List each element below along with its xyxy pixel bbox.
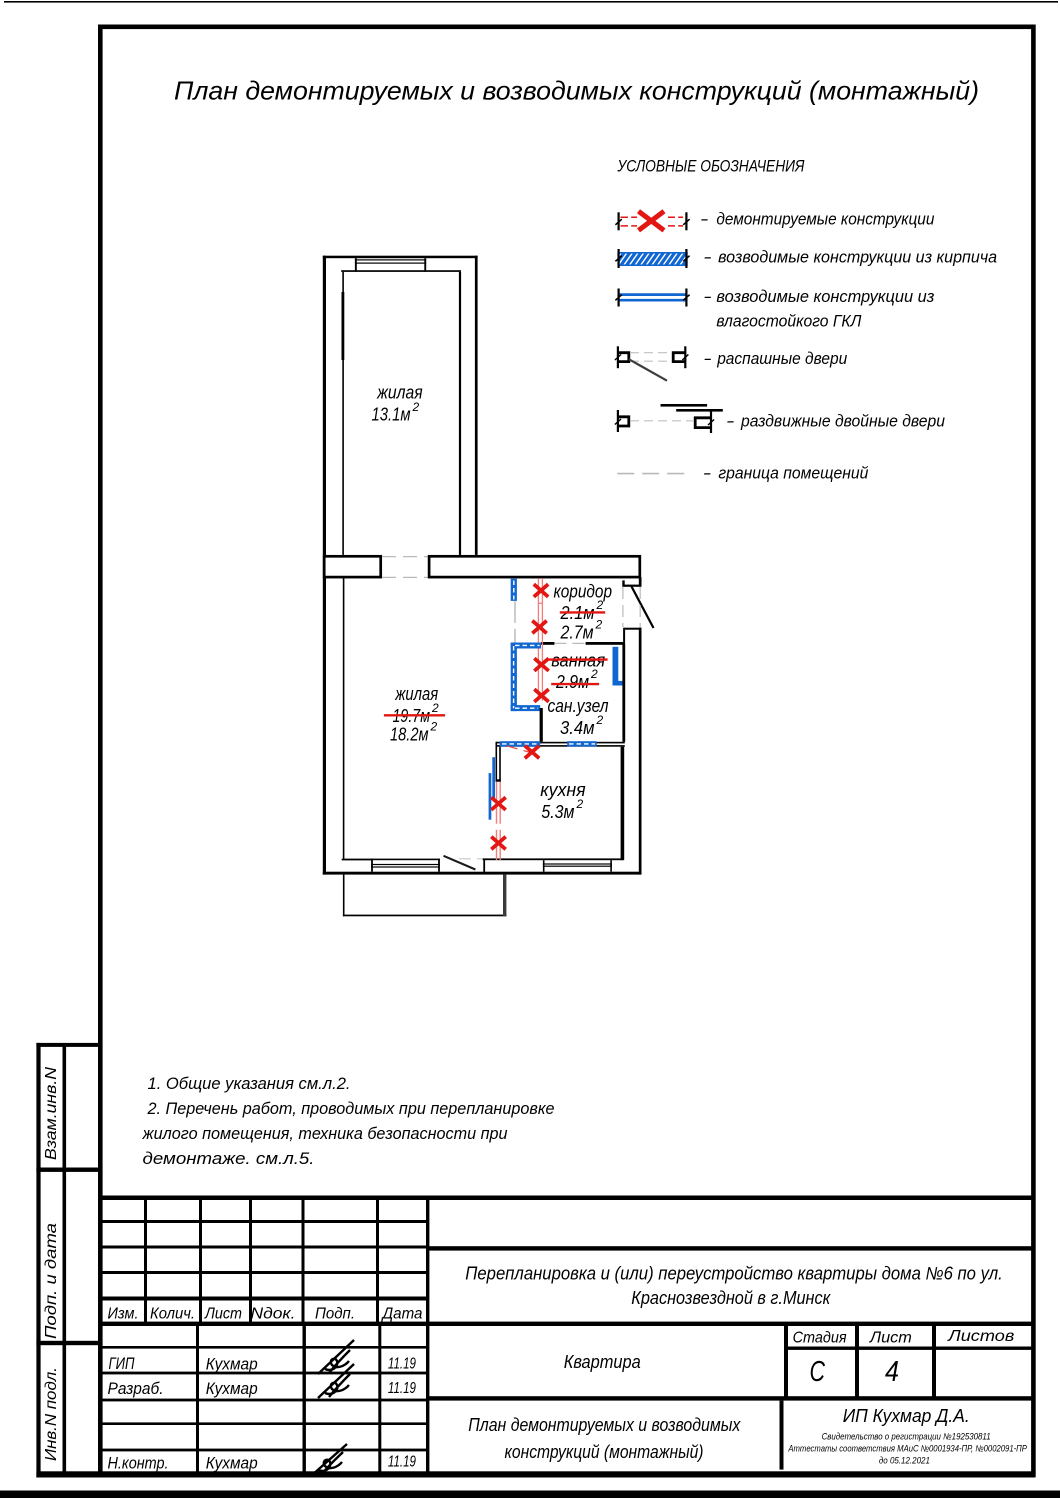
- svg-text:-: -: [703, 349, 712, 368]
- svg-text:распашные двери: распашные двери: [716, 349, 847, 368]
- svg-text:до 05.12.2021: до 05.12.2021: [879, 1456, 930, 1466]
- svg-text:2.7м: 2.7м: [560, 622, 594, 643]
- svg-text:Взам.инв.N: Взам.инв.N: [43, 1066, 60, 1160]
- svg-text:2: 2: [576, 797, 584, 811]
- svg-text:11.19: 11.19: [388, 1380, 416, 1397]
- svg-text:1. Общие указания см.л.2.: 1. Общие указания см.л.2.: [148, 1074, 351, 1093]
- svg-text:Листов: Листов: [947, 1328, 1014, 1345]
- svg-text:Кухмар: Кухмар: [206, 1380, 258, 1398]
- svg-text:Изм.: Изм.: [108, 1306, 139, 1323]
- svg-text:5.3м: 5.3м: [541, 801, 574, 822]
- svg-text:Свидетельство о регистрации №1: Свидетельство о регистрации №192530811: [822, 1432, 991, 1442]
- svg-text:11.19: 11.19: [388, 1356, 416, 1373]
- svg-text:2.9м: 2.9м: [555, 671, 589, 692]
- svg-text:жилого помещения, техника безо: жилого помещения, техника безопасности п…: [142, 1124, 508, 1143]
- svg-text:11.19: 11.19: [388, 1454, 416, 1471]
- svg-text:Стадия: Стадия: [793, 1330, 847, 1347]
- svg-text:Аттестаты соответствия МАиС №0: Аттестаты соответствия МАиС №0001934-ПР,…: [788, 1444, 1027, 1454]
- svg-text:влагостойкого ГКЛ: влагостойкого ГКЛ: [716, 312, 861, 331]
- svg-text:граница помещений: граница помещений: [718, 464, 869, 483]
- svg-text:3.4м: 3.4м: [560, 717, 595, 738]
- svg-text:План демонтируемых и возводимы: План демонтируемых и возводимых: [468, 1415, 741, 1435]
- svg-text:4: 4: [885, 1356, 899, 1388]
- svg-text:Подп.: Подп.: [315, 1306, 355, 1323]
- svg-text:2: 2: [596, 713, 604, 727]
- svg-text:Краснозвездной в г.Минск: Краснозвездной в г.Минск: [631, 1288, 831, 1308]
- svg-text:Кухмар: Кухмар: [206, 1356, 258, 1374]
- svg-text:демонтируемые конструкции: демонтируемые конструкции: [716, 210, 934, 229]
- svg-text:УСЛОВНЫЕ ОБОЗНАЧЕНИЯ: УСЛОВНЫЕ ОБОЗНАЧЕНИЯ: [617, 157, 805, 176]
- svg-text:Лист: Лист: [869, 1330, 912, 1347]
- svg-text:13.1м: 13.1м: [372, 404, 411, 425]
- svg-text:Nдок.: Nдок.: [251, 1306, 296, 1323]
- svg-text:Квартира: Квартира: [564, 1352, 641, 1372]
- svg-text:Дата: Дата: [381, 1306, 423, 1323]
- svg-text:Подп. и дата: Подп. и дата: [43, 1223, 60, 1339]
- svg-text:Перепланировка и (или) переуст: Перепланировка и (или) переустройство кв…: [465, 1264, 1003, 1284]
- svg-text:возводимые конструкции из кирп: возводимые конструкции из кирпича: [718, 248, 997, 267]
- svg-text:Н.контр.: Н.контр.: [108, 1455, 169, 1473]
- svg-text:2: 2: [595, 618, 603, 632]
- svg-text:Лист: Лист: [204, 1306, 242, 1323]
- svg-text:2: 2: [412, 400, 420, 414]
- svg-text:-: -: [703, 464, 712, 483]
- svg-text:коридор: коридор: [554, 581, 613, 602]
- svg-text:С: С: [810, 1356, 826, 1388]
- svg-text:ГИП: ГИП: [109, 1355, 135, 1373]
- svg-text:План демонтируемых и возводимы: План демонтируемых и возводимых конструк…: [174, 76, 979, 106]
- svg-text:2. Перечень работ, проводимых: 2. Перечень работ, проводимых при перепл…: [147, 1099, 555, 1118]
- svg-text:конструкций (монтажный): конструкций (монтажный): [505, 1442, 704, 1462]
- svg-text:-: -: [703, 248, 712, 267]
- svg-text:2: 2: [590, 667, 598, 681]
- svg-text:раздвижные двойные двери: раздвижные двойные двери: [740, 412, 945, 431]
- svg-text:Инв.N подл.: Инв.N подл.: [43, 1367, 60, 1461]
- svg-text:возводимые конструкции из: возводимые конструкции из: [716, 287, 934, 306]
- svg-text:Разраб.: Разраб.: [108, 1380, 164, 1398]
- svg-text:2: 2: [430, 720, 438, 734]
- svg-text:ИП Кухмар Д.А.: ИП Кухмар Д.А.: [843, 1406, 970, 1426]
- svg-text:-: -: [700, 210, 709, 229]
- svg-text:-: -: [703, 287, 712, 306]
- svg-text:Кухмар: Кухмар: [206, 1455, 258, 1473]
- svg-text:Колич.: Колич.: [150, 1306, 195, 1323]
- svg-text:2: 2: [596, 598, 604, 612]
- svg-text:2: 2: [431, 701, 439, 715]
- svg-text:-: -: [726, 412, 735, 431]
- svg-text:18.2м: 18.2м: [390, 724, 429, 745]
- svg-text:демонтаже. см.л.5.: демонтаже. см.л.5.: [143, 1149, 315, 1168]
